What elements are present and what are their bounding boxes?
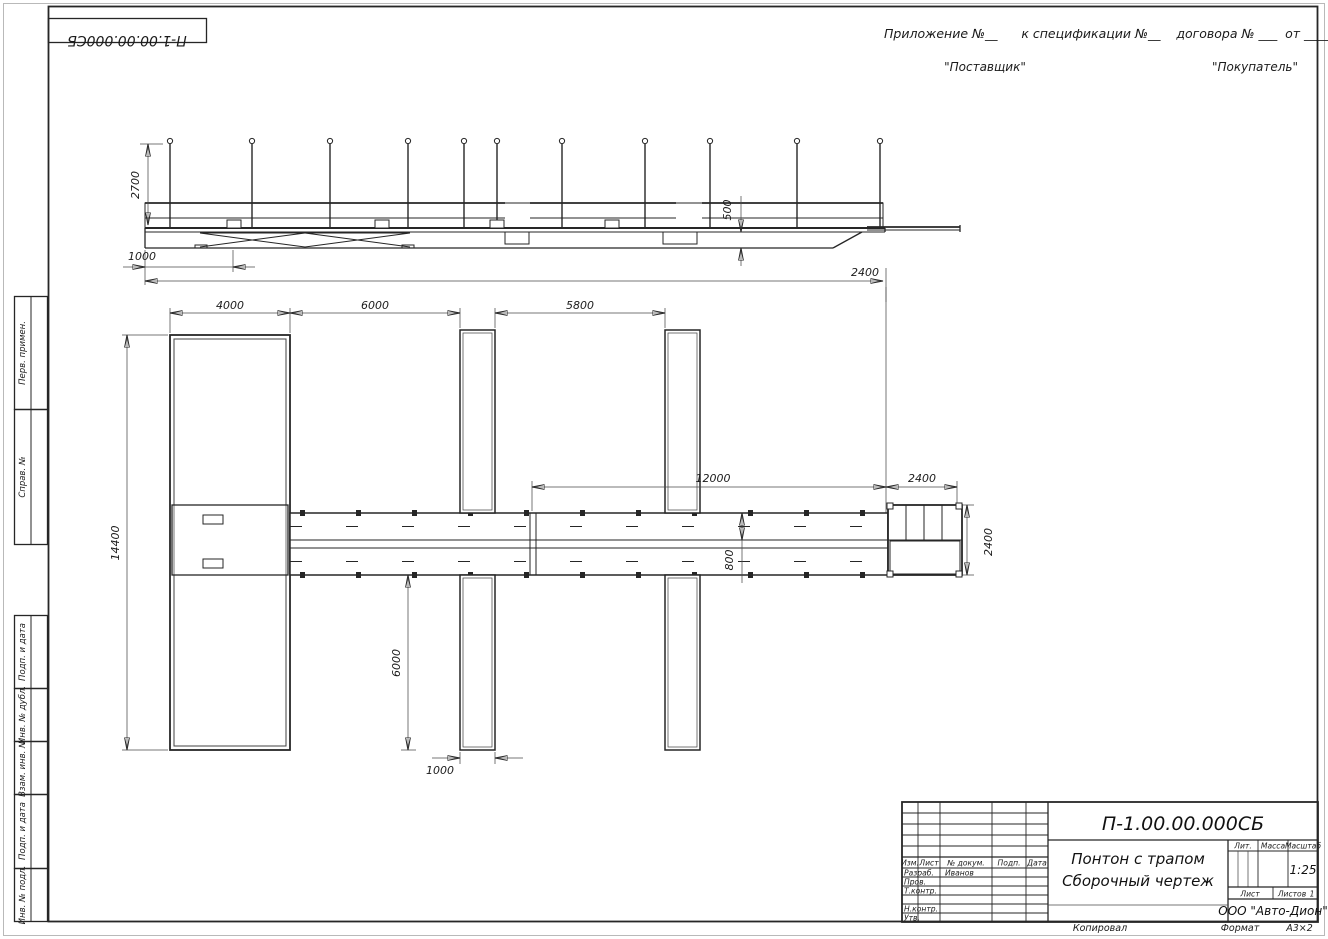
- drawing-sheet: { "drawing": { "stamp_rotated": "П-1.00.…: [0, 0, 1328, 939]
- main-pontoon-plan: [170, 335, 290, 750]
- role-prov: Пров.: [904, 878, 926, 887]
- dim-2400-plan-label: 2400: [908, 472, 936, 485]
- format-label: Формат: [1205, 923, 1275, 934]
- railing: [145, 203, 883, 228]
- rotated-doc-number: П-1.00.00.000СБ: [67, 32, 187, 48]
- dim-6000-vert-label: 6000: [390, 649, 403, 677]
- designer-name: Иванов: [945, 869, 974, 878]
- deck-brackets: [227, 220, 619, 228]
- margin-label-inv-podl: Инв. № подл.: [18, 866, 28, 925]
- revision-table: Изм. Лист № докум. Подп. Дата Разраб. Ив…: [901, 802, 1048, 923]
- dim-2700-label: 2700: [129, 171, 142, 199]
- sheets-label: Листов: [1277, 890, 1307, 899]
- col-list: Лист: [918, 859, 939, 868]
- pontoon-hull: [145, 228, 885, 248]
- margin-label-perv-primen: Перв. примен.: [18, 321, 28, 385]
- doc-number: П-1.00.00.000СБ: [1102, 813, 1264, 835]
- plan-view: 4000 6000 5800 12000 2400 14400 800 2400…: [100, 285, 1010, 790]
- gangway-platform-plan: [887, 503, 962, 577]
- dim-2400-right-label: 2400: [982, 528, 995, 556]
- role-tkontr: Т.контр.: [904, 887, 937, 896]
- lift-hatch-handle-top: [203, 515, 223, 524]
- drawing-title-1: Понтон с трапом: [1071, 850, 1205, 868]
- margin-label-vzam-inv: Взам. инв. №: [18, 739, 28, 797]
- mass-label: Масса: [1261, 842, 1286, 851]
- sheet-label: Лист: [1239, 890, 1260, 899]
- dim-4000-label: 4000: [216, 299, 244, 312]
- col-podp: Подп.: [998, 859, 1021, 868]
- elevation-view: 2700 1000 2400 500: [115, 130, 1005, 302]
- role-nkontr: Н.контр.: [904, 905, 938, 914]
- corner-stamp-box: П-1.00.00.000СБ: [49, 19, 207, 49]
- role-razrab: Разраб.: [904, 869, 934, 878]
- flag-posts: [167, 138, 882, 228]
- company-name: ООО "Авто-Дион": [1218, 904, 1328, 918]
- appendix-line: Приложение №__ к спецификации №__ догово…: [884, 26, 1328, 41]
- scissor-lift: [195, 233, 414, 248]
- dim-800-label: 800: [723, 550, 736, 571]
- col-data: Дата: [1026, 859, 1047, 868]
- lift-hatch-handle-bottom: [203, 559, 223, 568]
- dim-1000-elev-label: 1000: [128, 250, 156, 263]
- title-block-right: П-1.00.00.000СБ Понтон с трапом Сборочны…: [1048, 813, 1328, 922]
- dim-1000-plan-label: 1000: [426, 764, 454, 777]
- walkway-plan: [290, 513, 888, 575]
- sheets-value: 1: [1310, 890, 1315, 899]
- dim-500-label: 500: [721, 200, 734, 221]
- margin-label-podp-data-2: Подп. и дата: [18, 802, 28, 860]
- dim-6000-label: 6000: [361, 299, 389, 312]
- col-dokum: № докум.: [946, 859, 984, 868]
- margin-label-podp-data-1: Подп. и дата: [18, 623, 28, 681]
- margin-label-sprav: Справ. №: [18, 456, 28, 498]
- copied-label: Копировал: [1040, 923, 1160, 934]
- margin-label-inv-dubl: Инв. № дубл.: [18, 686, 28, 744]
- dim-5800-label: 5800: [566, 299, 594, 312]
- col-izm: Изм.: [901, 859, 919, 868]
- dim-2400-elev-label: 2400: [851, 266, 879, 279]
- format-value: А3×2: [1272, 923, 1327, 934]
- role-utv: Утв.: [904, 914, 920, 923]
- left-margin-boxes: Перв. примен. Справ. № Подп. и дата Инв.…: [15, 297, 48, 925]
- lit-label: Лит.: [1233, 842, 1251, 851]
- dim-12000-label: 12000: [696, 472, 731, 485]
- supplier-label: "Поставщик": [905, 60, 1065, 74]
- buyer-label: "Покупатель": [1175, 60, 1328, 74]
- dim-14400-label: 14400: [109, 526, 122, 561]
- scale-label: Масштаб: [1285, 842, 1321, 851]
- drawing-title-2: Сборочный чертеж: [1062, 872, 1214, 890]
- scale-value: 1:25: [1290, 863, 1317, 877]
- title-block: Изм. Лист № докум. Подп. Дата Разраб. Ив…: [900, 800, 1320, 924]
